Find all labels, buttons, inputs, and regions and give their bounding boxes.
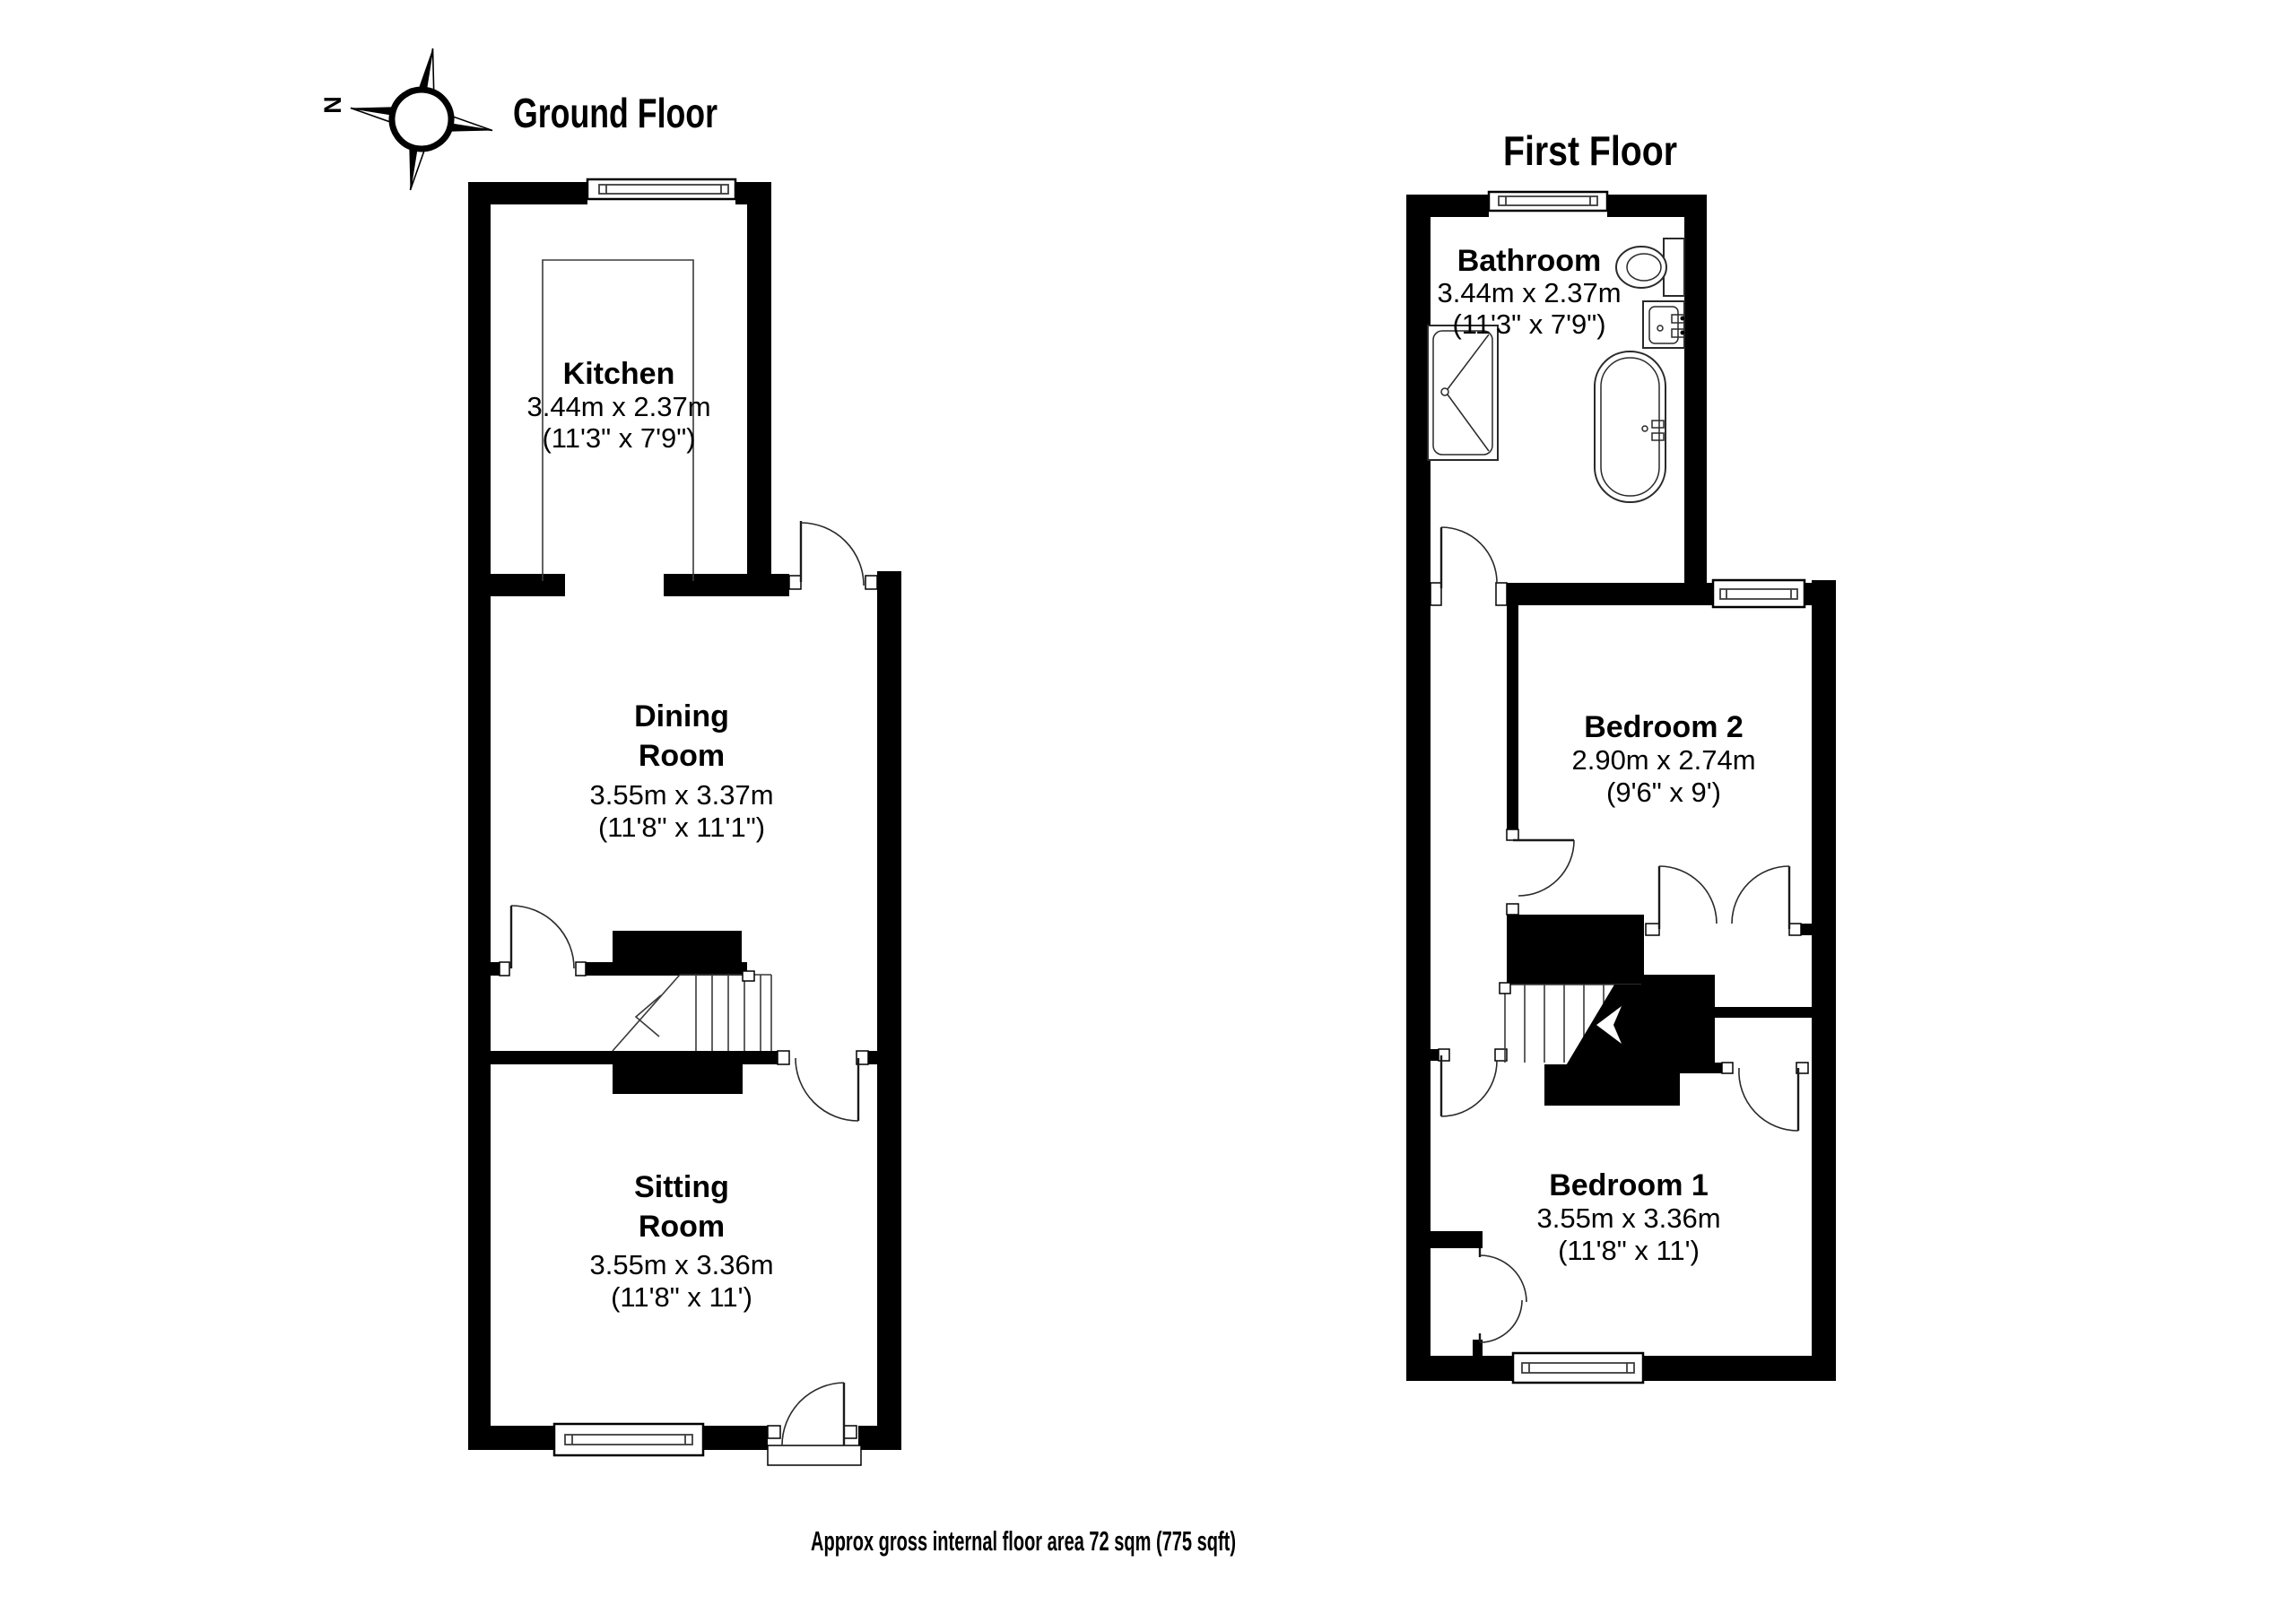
ground-floor-title: Ground Floor (513, 90, 717, 136)
first-floor-title: First Floor (1503, 127, 1677, 174)
wall-segment (1406, 195, 1431, 1381)
bedroom1-cupboard-doors (1480, 1248, 1526, 1342)
wall-segment (868, 1051, 877, 1064)
wall-segment (468, 1426, 554, 1450)
sitting-room-dims-imperial: (11'8" x 11') (611, 1281, 752, 1313)
sitting-room-dims-metric: 3.55m x 3.36m (589, 1249, 773, 1280)
wall-segment (1507, 583, 1715, 605)
dining-room-label-line1: Dining (634, 699, 729, 733)
ground-floor-stairs (613, 971, 771, 1051)
wall-segment (1507, 594, 1518, 829)
bathtub (1595, 352, 1665, 502)
bathroom-window (1489, 192, 1607, 211)
wall-segment (747, 204, 771, 576)
wall-segment (468, 182, 587, 204)
cupboard-wall-stub (1431, 1231, 1483, 1248)
sitting-room-label-line1: Sitting (634, 1170, 729, 1204)
sitting-room-window (554, 1424, 703, 1455)
stair-direction-arrow (636, 995, 661, 1037)
wall-segment (586, 962, 747, 976)
bathroom-label-group: Bathroom 3.44m x 2.37m (11'3" x 7'9") (1437, 244, 1621, 340)
bedroom1-window (1513, 1353, 1643, 1383)
wall-segment (491, 574, 565, 596)
landing-door (1439, 1049, 1507, 1116)
bathroom-dims-imperial: (11'3" x 7'9") (1452, 308, 1605, 340)
floorplan-drawing: N Ground Floor (0, 0, 2296, 1623)
kitchen-dims-imperial: (11'3" x 7'9") (542, 422, 695, 454)
footer-area-note: Approx gross internal floor area 72 sqm … (811, 1525, 1236, 1557)
bedroom1-dims-imperial: (11'8" x 11') (1558, 1235, 1700, 1266)
dining-room-label-line2: Room (639, 739, 725, 773)
bedroom1-door (1722, 1063, 1808, 1131)
wall-segment (703, 1426, 768, 1450)
kitchen-label-group: Kitchen 3.44m x 2.37m (11'3" x 7'9") (526, 357, 710, 454)
wall-segment (1406, 1356, 1513, 1381)
stair-direction-line (613, 975, 680, 1051)
bedroom2-dims-metric: 2.90m x 2.74m (1571, 744, 1755, 776)
bedroom2-dims-imperial: (9'6" x 9') (1606, 777, 1721, 808)
side-entrance-door (789, 521, 877, 589)
dining-room-door (500, 906, 586, 976)
kitchen-window (587, 179, 735, 199)
wall-segment (1431, 1049, 1439, 1061)
chimney-breast-bedroom1 (1544, 1064, 1680, 1106)
chimney-breast-sitting (613, 1064, 743, 1094)
compass-star (339, 37, 503, 201)
toilet (1616, 239, 1684, 296)
bedroom2-window (1713, 580, 1805, 607)
sitting-room-door (778, 1051, 868, 1121)
basin (1643, 301, 1685, 348)
wall-segment (858, 1426, 901, 1450)
wall-segment (1801, 924, 1836, 935)
sitting-room-label-group: Sitting Room 3.55m x 3.36m (11'8" x 11') (589, 1170, 773, 1313)
wall-segment (1643, 1356, 1836, 1381)
bathroom-label: Bathroom (1457, 244, 1602, 278)
bedroom2-wardrobe-doors (1646, 866, 1801, 935)
front-door (768, 1383, 861, 1465)
compass: N (319, 37, 504, 201)
dining-room-dims-imperial: (11'8" x 11'1") (598, 811, 765, 843)
dining-room-label-group: Dining Room 3.55m x 3.37m (11'8" x 11'1"… (589, 699, 773, 843)
wall-segment (664, 574, 789, 596)
wall-segment (491, 962, 500, 976)
wall-segment (735, 182, 771, 204)
bedroom2-label-group: Bedroom 2 2.90m x 2.74m (9'6" x 9') (1571, 710, 1755, 808)
floorplan-page: N Ground Floor (0, 0, 2296, 1623)
bedroom1-label-group: Bedroom 1 3.55m x 3.36m (11'8" x 11') (1536, 1168, 1720, 1266)
bedroom2-label: Bedroom 2 (1584, 710, 1744, 744)
chimney-breast-dining (613, 931, 742, 964)
wall-segment (1607, 195, 1686, 217)
wall-segment (468, 182, 491, 1450)
first-floor-plan: First Floor (1406, 127, 1836, 1383)
wall-segment (1406, 195, 1489, 217)
wall-segment (877, 571, 901, 1450)
bedroom1-label: Bedroom 1 (1549, 1168, 1709, 1202)
kitchen-dims-metric: 3.44m x 2.37m (526, 391, 710, 422)
wall-segment (491, 1051, 778, 1064)
bedroom1-dims-metric: 3.55m x 3.36m (1536, 1202, 1720, 1234)
bathroom-door (1431, 527, 1507, 605)
ground-floor-plan: Ground Floor (468, 90, 901, 1465)
sitting-room-label-line2: Room (639, 1210, 725, 1244)
bathroom-dims-metric: 3.44m x 2.37m (1437, 277, 1621, 308)
compass-north-label: N (319, 96, 346, 114)
wall-segment (1715, 1007, 1812, 1018)
compass-circle (387, 85, 456, 153)
dining-room-dims-metric: 3.55m x 3.37m (589, 779, 773, 811)
kitchen-label: Kitchen (563, 357, 675, 391)
shower (1428, 325, 1498, 460)
bedroom2-door (1507, 829, 1574, 915)
chimney-breast-stairs (1507, 915, 1644, 985)
wall-segment (1684, 195, 1707, 605)
wall-segment (1812, 580, 1836, 1381)
